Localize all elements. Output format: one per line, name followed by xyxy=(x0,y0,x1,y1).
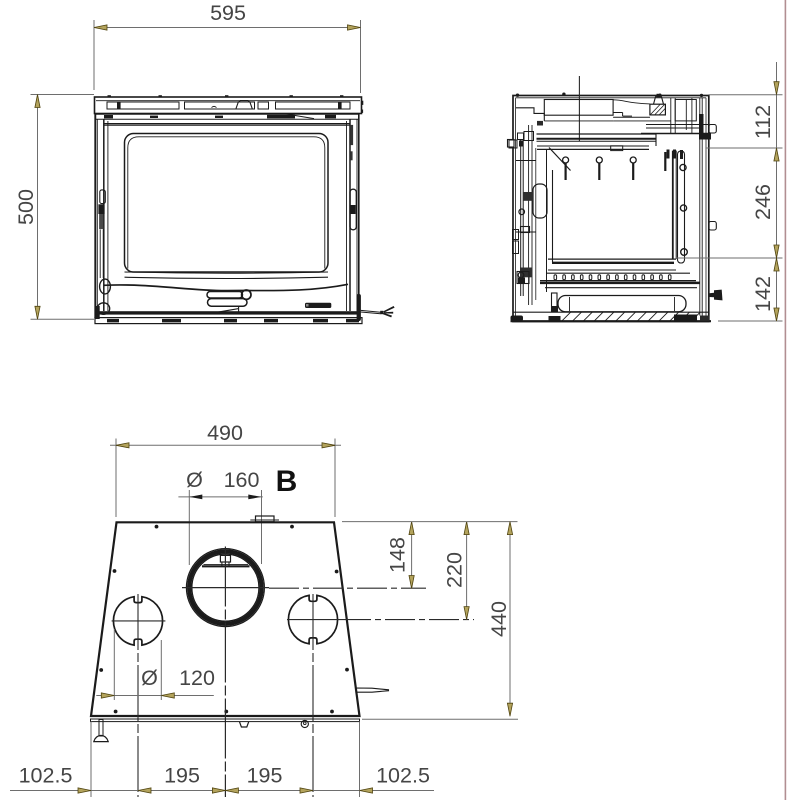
svg-text:220: 220 xyxy=(443,552,467,588)
svg-text:490: 490 xyxy=(207,421,243,445)
svg-text:B: B xyxy=(276,465,298,498)
svg-text:102.5: 102.5 xyxy=(19,764,73,788)
svg-text:148: 148 xyxy=(386,537,410,573)
svg-text:Ø: Ø xyxy=(186,468,203,492)
svg-text:246: 246 xyxy=(751,184,775,220)
svg-text:112: 112 xyxy=(751,105,775,139)
svg-text:440: 440 xyxy=(487,601,511,637)
svg-text:Ø: Ø xyxy=(141,666,158,690)
svg-text:120: 120 xyxy=(179,666,215,690)
svg-text:500: 500 xyxy=(14,189,38,225)
svg-text:160: 160 xyxy=(224,468,260,492)
svg-text:595: 595 xyxy=(210,1,246,25)
svg-text:195: 195 xyxy=(164,764,200,788)
svg-text:142: 142 xyxy=(751,276,775,312)
svg-text:195: 195 xyxy=(247,764,283,788)
svg-text:102.5: 102.5 xyxy=(376,764,430,788)
